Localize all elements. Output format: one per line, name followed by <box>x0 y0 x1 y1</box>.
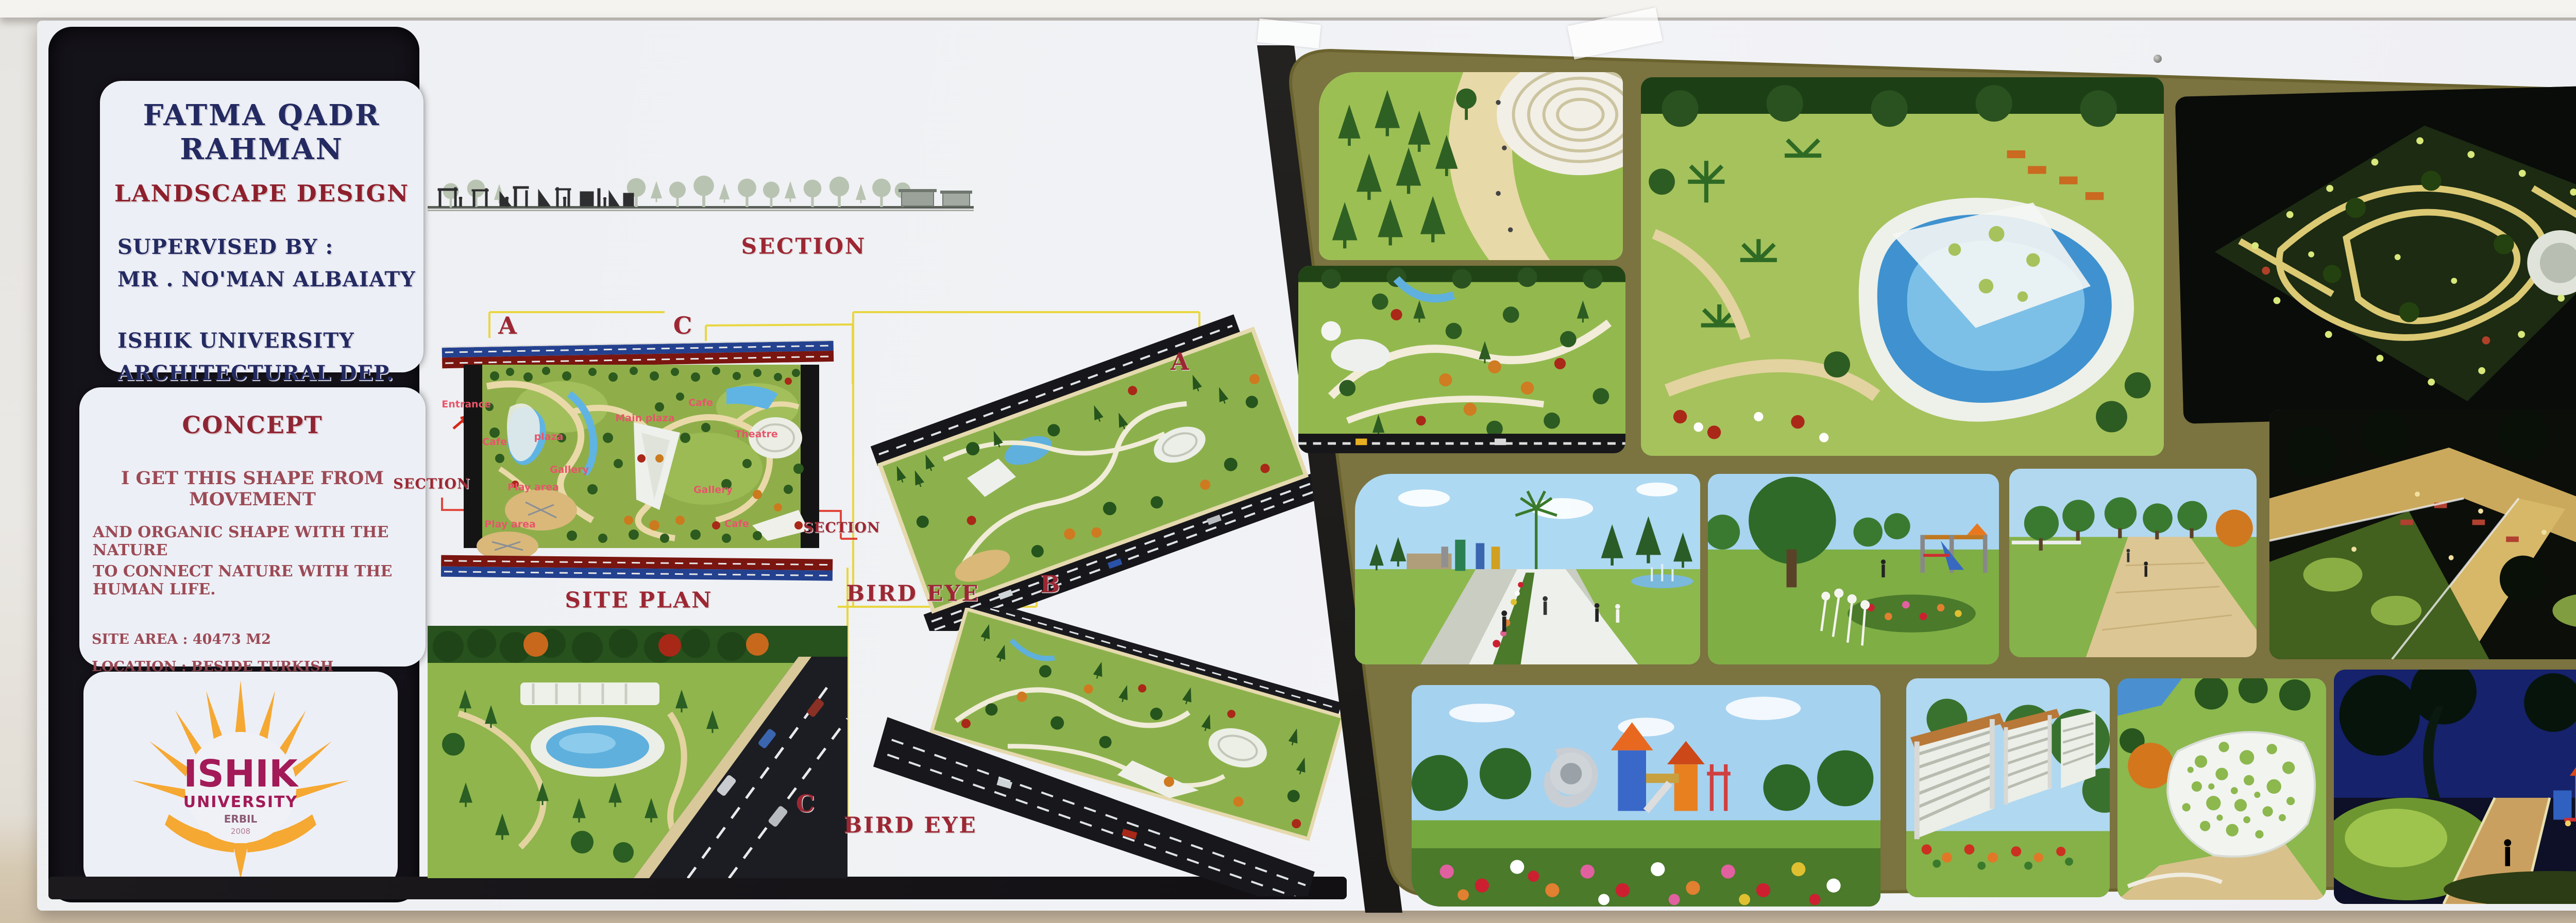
university-name: ISHIK UNIVERSITY <box>117 329 423 353</box>
section-drawing <box>428 165 974 219</box>
university-logo-card: ISHIK UNIVERSITY ERBIL 2008 <box>83 672 398 888</box>
render-night-plaza <box>2269 409 2576 659</box>
render-pergola-walk <box>1906 678 2110 897</box>
marker-c-entrance: C <box>796 790 815 817</box>
render-playground-slides <box>1412 685 1880 907</box>
project-title: LANDSCAPE DESIGN <box>100 180 423 207</box>
title-card: FATMA QADR RAHMAN LANDSCAPE DESIGN SUPER… <box>100 81 423 372</box>
site-plan-drawing: < <box>438 304 871 618</box>
concept-card: CONCEPT I GET THIS SHAPE FROM MOVEMENT A… <box>79 387 426 666</box>
bird-eye-2-title: BIRD EYE <box>843 813 977 838</box>
section-title: SECTION <box>741 234 867 259</box>
left-info-panel: FATMA QADR RAHMAN LANDSCAPE DESIGN SUPER… <box>48 27 419 902</box>
render-pool-aerial <box>1641 77 2164 456</box>
concept-line3: TO CONNECT NATURE WITH THE HUMAN LIFE. <box>93 562 426 599</box>
presentation-board: FATMA QADR RAHMAN LANDSCAPE DESIGN SUPER… <box>37 21 2576 911</box>
photo-of-presentation-board: FATMA QADR RAHMAN LANDSCAPE DESIGN SUPER… <box>0 0 2576 923</box>
concept-line2: AND ORGANIC SHAPE WITH THE NATURE <box>93 523 426 559</box>
plan-label-play-area-2: Play area <box>484 519 536 530</box>
supervised-by-label: SUPERVISED BY : <box>117 235 423 259</box>
supervisor-name: MR . NO'MAN ALBAIATY <box>117 267 423 292</box>
logo-city-text: ERBIL <box>224 813 258 825</box>
render-park-overview-day <box>1298 266 1625 453</box>
ishik-sun-logo-icon: ISHIK UNIVERSITY ERBIL 2008 <box>120 679 362 880</box>
plan-label-cafe-1: Cafe <box>482 436 507 448</box>
plan-label-gallery-2: Gallery <box>693 484 733 495</box>
logo-sub-text: UNIVERSITY <box>183 793 298 811</box>
marker-a-bird-eye: A <box>1171 348 1189 375</box>
render-tree-path <box>2009 469 2257 657</box>
plan-label-entrance: Entrance <box>442 399 490 410</box>
entrance-perspective-view <box>428 626 848 878</box>
marker-a-site-plan: A <box>498 312 517 339</box>
site-plan-title: SITE PLAN <box>565 588 713 613</box>
plan-label-plaza: plaza <box>534 431 564 442</box>
render-amphitheater-aerial <box>1319 72 1623 260</box>
screw-icon <box>2154 55 2162 63</box>
render-white-canopy <box>2117 678 2326 900</box>
section-cut-label-left: SECTION <box>393 476 470 492</box>
plan-label-theatre: Theatre <box>735 429 778 440</box>
site-area-text: SITE AREA : 40473 M2 <box>92 631 426 647</box>
concept-heading: CONCEPT <box>79 411 426 439</box>
plan-label-main-plaza: Main plaza <box>615 413 674 424</box>
marker-b-bird-eye: B <box>1040 570 1060 598</box>
plan-label-cafe-3: Cafe <box>724 518 749 529</box>
marker-c-site-plan: C <box>673 312 692 339</box>
plan-label-play-area-1: Play area <box>507 482 559 493</box>
plan-label-gallery-1: Gallery <box>550 464 589 475</box>
wall-molding <box>0 0 2576 18</box>
concept-line1: I GET THIS SHAPE FROM MOVEMENT <box>84 468 420 510</box>
render-garden-playground <box>1708 474 1999 664</box>
department-name: ARCHITECTURAL DEP. <box>117 361 423 385</box>
bird-eye-1-title: BIRD EYE <box>846 581 979 606</box>
logo-name-text: ISHIK <box>183 752 299 795</box>
render-night-playground <box>2334 670 2576 904</box>
render-walkway-palms <box>1355 474 1700 664</box>
logo-year-text: 2008 <box>231 827 250 836</box>
render-night-aerial <box>2175 83 2576 424</box>
student-name: FATMA QADR RAHMAN <box>100 98 423 166</box>
plan-label-cafe-2: Cafe <box>688 397 713 408</box>
